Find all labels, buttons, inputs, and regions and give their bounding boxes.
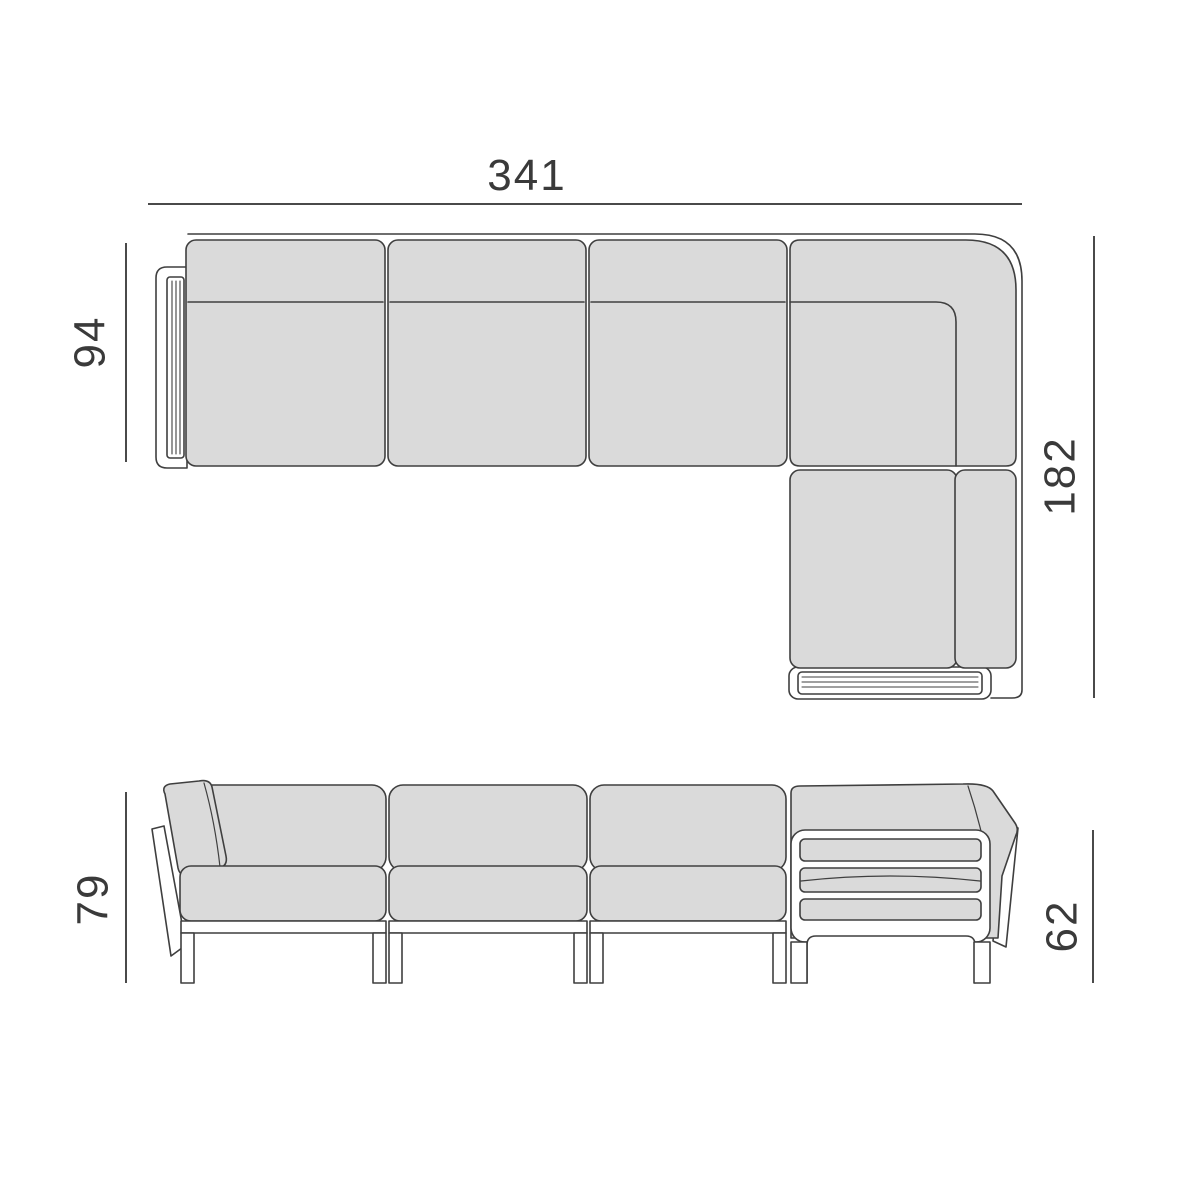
module-2-top — [388, 240, 586, 466]
diagram-svg: 341 94 182 79 62 — [0, 0, 1200, 1200]
module-1-top — [186, 240, 385, 466]
dim-label-overall-width: 341 — [487, 151, 566, 200]
leg-1b — [373, 933, 386, 983]
seat-cushion-2 — [389, 866, 587, 921]
leg-2a — [389, 933, 402, 983]
right-corner-assembly — [791, 784, 1018, 983]
leg-3a — [590, 933, 603, 983]
rail-2 — [389, 921, 587, 933]
dim-label-seat-depth: 94 — [66, 316, 115, 369]
dim-label-chaise-depth: 182 — [1036, 436, 1085, 515]
furniture-dimension-diagram: 341 94 182 79 62 — [0, 0, 1200, 1200]
module-3-top — [589, 240, 787, 466]
dim-label-side-height: 62 — [1038, 900, 1087, 953]
side-frame-slot-3 — [800, 899, 981, 920]
right-end-side-frame — [789, 667, 991, 699]
side-frame-opening — [807, 936, 975, 983]
top-plan-view — [156, 234, 1022, 699]
corner-leg-right — [974, 942, 990, 983]
seat-cushion-3 — [590, 866, 786, 921]
dim-label-overall-height: 79 — [69, 873, 118, 926]
rail-1 — [181, 921, 386, 933]
corner-module-top — [790, 240, 1016, 466]
chaise-seat-top — [790, 470, 957, 668]
side-frame-slot-1 — [800, 839, 981, 861]
back-cushion-2 — [389, 785, 587, 871]
chaise-back-strip-top — [955, 470, 1016, 668]
leg-1a — [181, 933, 194, 983]
seat-cushion-1 — [180, 866, 386, 921]
leg-2b — [574, 933, 587, 983]
corner-leg-left — [791, 942, 807, 983]
front-elevation-view — [152, 781, 1018, 983]
rail-3 — [590, 921, 786, 933]
side-frame-slot-2 — [800, 868, 981, 892]
back-cushion-3 — [590, 785, 786, 871]
left-side-frame — [156, 267, 187, 468]
leg-3b — [773, 933, 786, 983]
